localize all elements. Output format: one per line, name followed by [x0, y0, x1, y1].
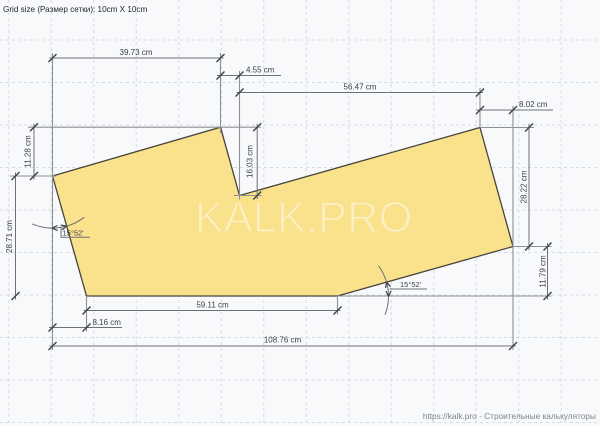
svg-text:8.02 cm: 8.02 cm	[519, 100, 548, 109]
svg-text:59.11 cm: 59.11 cm	[196, 301, 229, 310]
svg-text:15°52': 15°52'	[63, 229, 85, 238]
svg-text:56.47 cm: 56.47 cm	[344, 83, 377, 92]
svg-text:39.73 cm: 39.73 cm	[120, 48, 153, 57]
svg-text:11.28 cm: 11.28 cm	[24, 135, 33, 168]
svg-text:28.22 cm: 28.22 cm	[520, 170, 529, 203]
svg-text:4.55 cm: 4.55 cm	[246, 66, 275, 75]
svg-text:https://kalk.pro - Строительны: https://kalk.pro - Строительные калькуля…	[423, 411, 596, 421]
svg-text:16.03 cm: 16.03 cm	[245, 145, 254, 178]
svg-text:108.76 cm: 108.76 cm	[264, 336, 302, 345]
svg-text:KALK.PRO: KALK.PRO	[195, 194, 413, 242]
svg-text:28.71 cm: 28.71 cm	[5, 220, 14, 253]
svg-text:Grid size (Размер сетки): 10cm: Grid size (Размер сетки): 10cm X 10cm	[3, 5, 147, 14]
svg-text:8.16 cm: 8.16 cm	[93, 318, 122, 327]
svg-text:15°52': 15°52'	[400, 280, 422, 289]
svg-text:11.79 cm: 11.79 cm	[539, 255, 548, 288]
